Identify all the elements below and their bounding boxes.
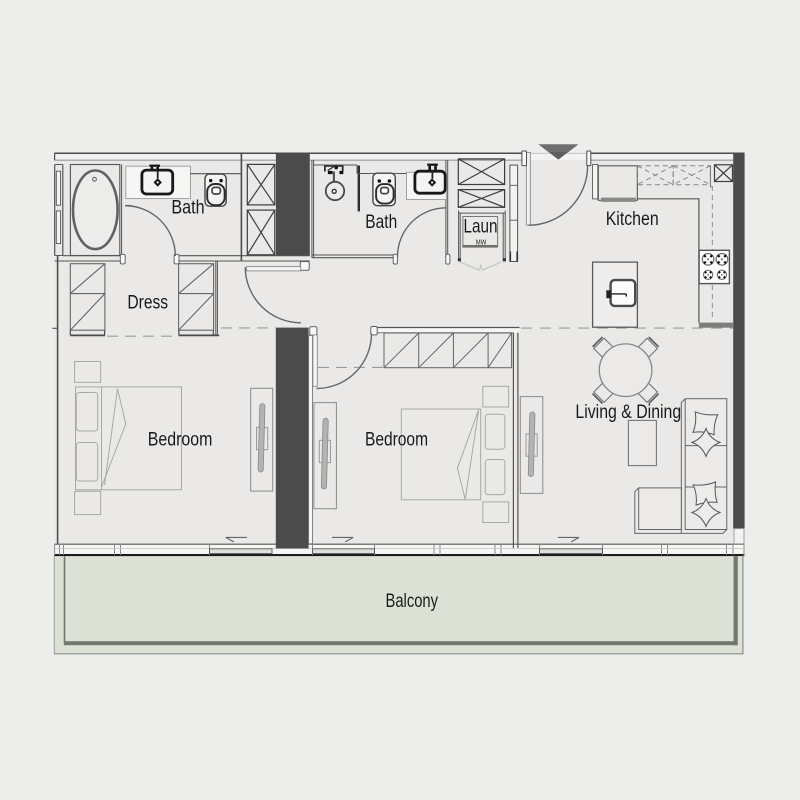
svg-text:Dress: Dress: [127, 292, 168, 314]
svg-text:Kitchen: Kitchen: [606, 208, 659, 230]
svg-text:Bath: Bath: [171, 197, 204, 219]
svg-text:Living & Dining: Living & Dining: [575, 401, 681, 423]
svg-text:Balcony: Balcony: [386, 590, 439, 612]
svg-text:Bedroom: Bedroom: [365, 428, 428, 450]
svg-text:Bath: Bath: [365, 211, 397, 233]
svg-text:Laun: Laun: [464, 216, 498, 238]
svg-text:MW: MW: [476, 237, 487, 246]
svg-text:Bedroom: Bedroom: [148, 428, 213, 450]
